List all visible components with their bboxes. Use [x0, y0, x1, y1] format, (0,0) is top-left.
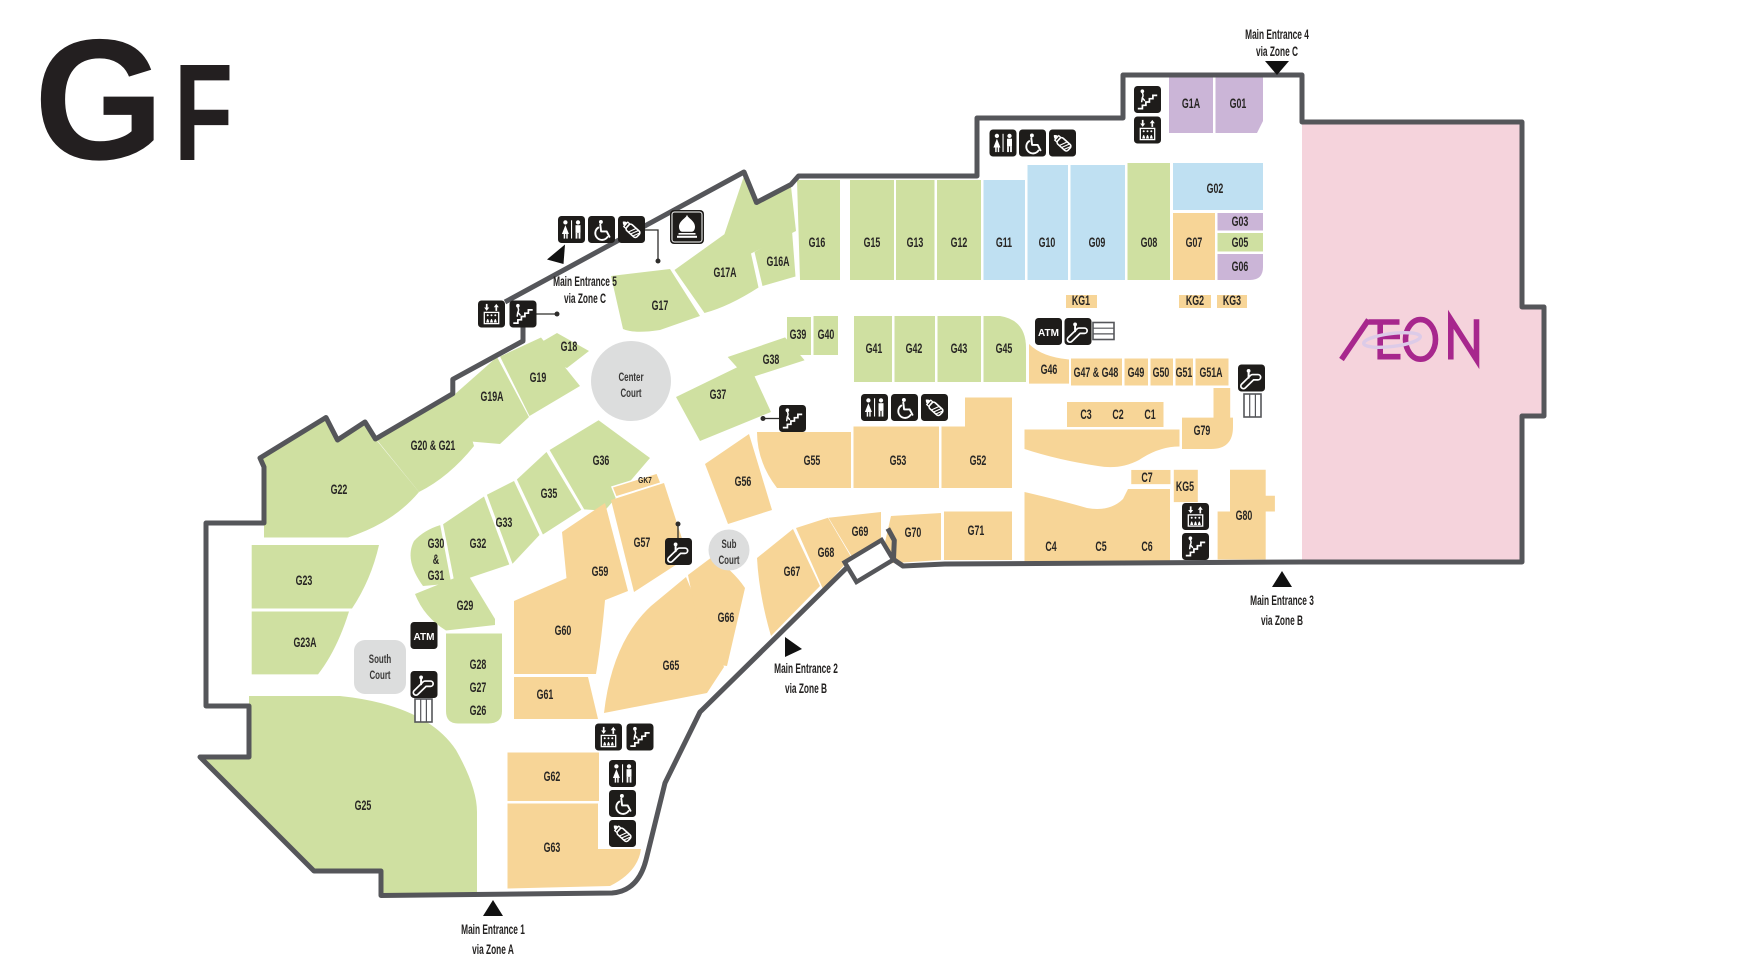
svg-text:G19A: G19A [480, 389, 503, 404]
svg-text:G19: G19 [530, 370, 547, 385]
svg-text:Main Entrance 1: Main Entrance 1 [461, 922, 525, 937]
svg-text:C1: C1 [1144, 407, 1156, 422]
svg-text:G08: G08 [1141, 235, 1158, 250]
svg-text:G43: G43 [951, 341, 968, 356]
svg-text:G09: G09 [1089, 235, 1106, 250]
svg-text:G35: G35 [541, 486, 558, 501]
svg-text:G68: G68 [818, 545, 835, 560]
svg-text:G13: G13 [907, 235, 924, 250]
svg-text:KG1: KG1 [1072, 293, 1091, 308]
svg-text:G79: G79 [1194, 423, 1211, 438]
svg-text:via Zone C: via Zone C [564, 291, 606, 306]
svg-text:G12: G12 [951, 235, 968, 250]
svg-text:KG3: KG3 [1223, 293, 1242, 308]
svg-text:Main Entrance 3: Main Entrance 3 [1250, 593, 1314, 608]
svg-text:G02: G02 [1207, 181, 1224, 196]
svg-text:&: & [433, 552, 440, 567]
svg-text:G55: G55 [804, 453, 821, 468]
svg-text:G10: G10 [1039, 235, 1056, 250]
svg-text:C7: C7 [1141, 470, 1152, 485]
svg-text:G49: G49 [1128, 365, 1145, 380]
svg-text:G67: G67 [784, 564, 801, 579]
svg-text:South: South [369, 654, 391, 666]
svg-text:via Zone B: via Zone B [785, 681, 827, 696]
svg-text:F: F [174, 36, 233, 190]
svg-text:G32: G32 [470, 536, 487, 551]
svg-text:G07: G07 [1186, 235, 1203, 250]
svg-text:G26: G26 [470, 703, 487, 718]
svg-text:G17: G17 [652, 298, 669, 313]
svg-text:GK7: GK7 [638, 475, 652, 485]
svg-text:G03: G03 [1232, 214, 1249, 229]
svg-text:G06: G06 [1232, 259, 1249, 274]
svg-text:G59: G59 [592, 564, 609, 579]
svg-text:G16A: G16A [766, 254, 789, 269]
svg-text:G62: G62 [544, 769, 561, 784]
svg-text:G41: G41 [866, 341, 883, 356]
svg-text:G18: G18 [561, 339, 578, 354]
svg-text:Main Entrance 5: Main Entrance 5 [553, 274, 617, 289]
svg-text:G52: G52 [970, 453, 987, 468]
svg-text:C6: C6 [1141, 539, 1153, 554]
svg-text:G31: G31 [428, 568, 445, 583]
svg-text:G46: G46 [1041, 362, 1058, 377]
svg-text:G38: G38 [763, 352, 780, 367]
svg-text:G47 & G48: G47 & G48 [1074, 365, 1119, 380]
svg-text:G25: G25 [355, 798, 372, 813]
svg-text:G17A: G17A [713, 265, 736, 280]
svg-text:C5: C5 [1095, 539, 1107, 554]
svg-text:G66: G66 [718, 610, 735, 625]
svg-text:G23: G23 [296, 573, 313, 588]
svg-text:G05: G05 [1232, 235, 1249, 250]
svg-text:Sub: Sub [722, 539, 737, 551]
svg-text:G71: G71 [968, 523, 985, 538]
svg-text:KG2: KG2 [1186, 293, 1204, 308]
svg-text:G1A: G1A [1182, 96, 1200, 111]
svg-text:G16: G16 [809, 235, 826, 250]
svg-text:G40: G40 [818, 327, 835, 342]
svg-text:G: G [34, 4, 164, 196]
svg-text:G01: G01 [1230, 96, 1247, 111]
svg-text:Court: Court [369, 670, 390, 682]
svg-text:G56: G56 [735, 474, 752, 489]
svg-text:G29: G29 [457, 598, 474, 613]
svg-text:G51: G51 [1176, 365, 1193, 380]
svg-text:G57: G57 [634, 535, 651, 550]
svg-text:G37: G37 [710, 387, 727, 402]
svg-text:Court: Court [718, 555, 739, 567]
svg-text:G45: G45 [996, 341, 1013, 356]
svg-text:G70: G70 [905, 525, 922, 540]
svg-text:Main Entrance 2: Main Entrance 2 [774, 661, 838, 676]
svg-text:Main Entrance 4: Main Entrance 4 [1245, 27, 1309, 42]
svg-text:G11: G11 [996, 235, 1013, 250]
svg-text:G51A: G51A [1199, 365, 1222, 380]
svg-text:via Zone B: via Zone B [1261, 613, 1303, 628]
svg-text:G69: G69 [852, 524, 869, 539]
svg-text:G65: G65 [663, 658, 680, 673]
svg-text:G42: G42 [906, 341, 923, 356]
svg-text:G39: G39 [790, 327, 807, 342]
svg-text:via Zone C: via Zone C [1256, 44, 1298, 59]
svg-text:G30: G30 [428, 536, 445, 551]
svg-text:C2: C2 [1112, 407, 1123, 422]
svg-text:via Zone A: via Zone A [472, 942, 514, 957]
svg-text:G22: G22 [331, 482, 348, 497]
svg-text:KG5: KG5 [1176, 479, 1195, 494]
svg-text:G20 & G21: G20 & G21 [411, 438, 456, 453]
svg-text:G53: G53 [890, 453, 907, 468]
svg-text:G33: G33 [496, 515, 513, 530]
svg-text:G23A: G23A [293, 635, 316, 650]
svg-text:G63: G63 [544, 840, 561, 855]
svg-text:G28: G28 [470, 657, 487, 672]
svg-text:G36: G36 [593, 453, 610, 468]
svg-text:G80: G80 [1236, 508, 1253, 523]
svg-text:G60: G60 [555, 623, 572, 638]
svg-text:G27: G27 [470, 680, 487, 695]
svg-text:G15: G15 [864, 235, 881, 250]
svg-text:Court: Court [620, 388, 641, 400]
svg-text:G50: G50 [1153, 365, 1170, 380]
svg-text:Center: Center [618, 372, 643, 384]
svg-text:C3: C3 [1080, 407, 1092, 422]
svg-text:C4: C4 [1045, 539, 1057, 554]
svg-text:G61: G61 [537, 687, 554, 702]
